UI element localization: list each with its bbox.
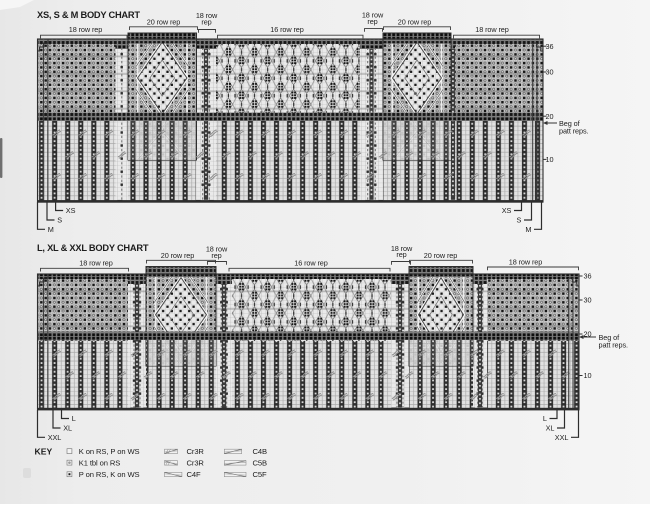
svg-text:KEY: KEY — [35, 446, 53, 456]
svg-text:18 row rep: 18 row rep — [475, 25, 509, 34]
svg-text:XS: XS — [66, 206, 76, 215]
svg-text:M: M — [525, 225, 531, 234]
svg-text:XS, S & M BODY CHART: XS, S & M BODY CHART — [37, 10, 140, 20]
svg-text:16 row rep: 16 row rep — [294, 259, 328, 268]
svg-text:20 row rep: 20 row rep — [161, 251, 195, 260]
svg-text:patt reps.: patt reps. — [559, 126, 588, 135]
svg-text:S: S — [57, 216, 62, 225]
svg-text:30: 30 — [584, 296, 592, 305]
svg-text:rep: rep — [201, 18, 211, 27]
svg-text:20 row rep: 20 row rep — [147, 18, 181, 27]
svg-text:C4B: C4B — [253, 447, 268, 456]
svg-text:rep: rep — [396, 250, 406, 259]
svg-text:20 row rep: 20 row rep — [424, 251, 458, 260]
svg-text:L: L — [72, 414, 76, 423]
svg-text:M: M — [48, 225, 54, 234]
svg-text:S: S — [517, 216, 522, 225]
svg-text:P on RS, K on WS: P on RS, K on WS — [79, 470, 140, 479]
svg-text:rep: rep — [367, 17, 377, 26]
svg-text:C4F: C4F — [187, 470, 202, 479]
svg-text:10: 10 — [546, 155, 554, 164]
svg-text:XXL: XXL — [555, 433, 569, 442]
svg-text:30: 30 — [546, 68, 554, 77]
svg-text:C5B: C5B — [253, 458, 268, 467]
svg-text:rep: rep — [211, 251, 221, 260]
svg-text:16 row rep: 16 row rep — [270, 25, 304, 34]
svg-text:L, XL & XXL BODY CHART: L, XL & XXL BODY CHART — [37, 243, 149, 253]
svg-text:XXL: XXL — [48, 433, 62, 442]
svg-text:36: 36 — [584, 272, 592, 281]
svg-text:L: L — [543, 414, 547, 423]
svg-text:20 row rep: 20 row rep — [398, 18, 432, 27]
svg-text:XL: XL — [63, 424, 72, 433]
svg-text:20: 20 — [546, 112, 554, 121]
svg-text:Cr3R: Cr3R — [187, 447, 205, 456]
svg-text:K1 tbl on RS: K1 tbl on RS — [79, 458, 120, 467]
svg-text:patt reps.: patt reps. — [599, 341, 628, 350]
svg-text:18 row rep: 18 row rep — [79, 259, 113, 268]
svg-text:10: 10 — [584, 371, 592, 380]
svg-text:XS: XS — [502, 206, 512, 215]
svg-text:18 row rep: 18 row rep — [509, 257, 543, 266]
svg-text:Cr3R: Cr3R — [187, 458, 205, 467]
svg-text:18 row rep: 18 row rep — [69, 25, 103, 34]
svg-text:C5F: C5F — [253, 470, 268, 479]
svg-text:XL: XL — [546, 424, 555, 433]
svg-text:K on RS, P on WS: K on RS, P on WS — [79, 447, 140, 456]
svg-text:36: 36 — [546, 42, 554, 51]
